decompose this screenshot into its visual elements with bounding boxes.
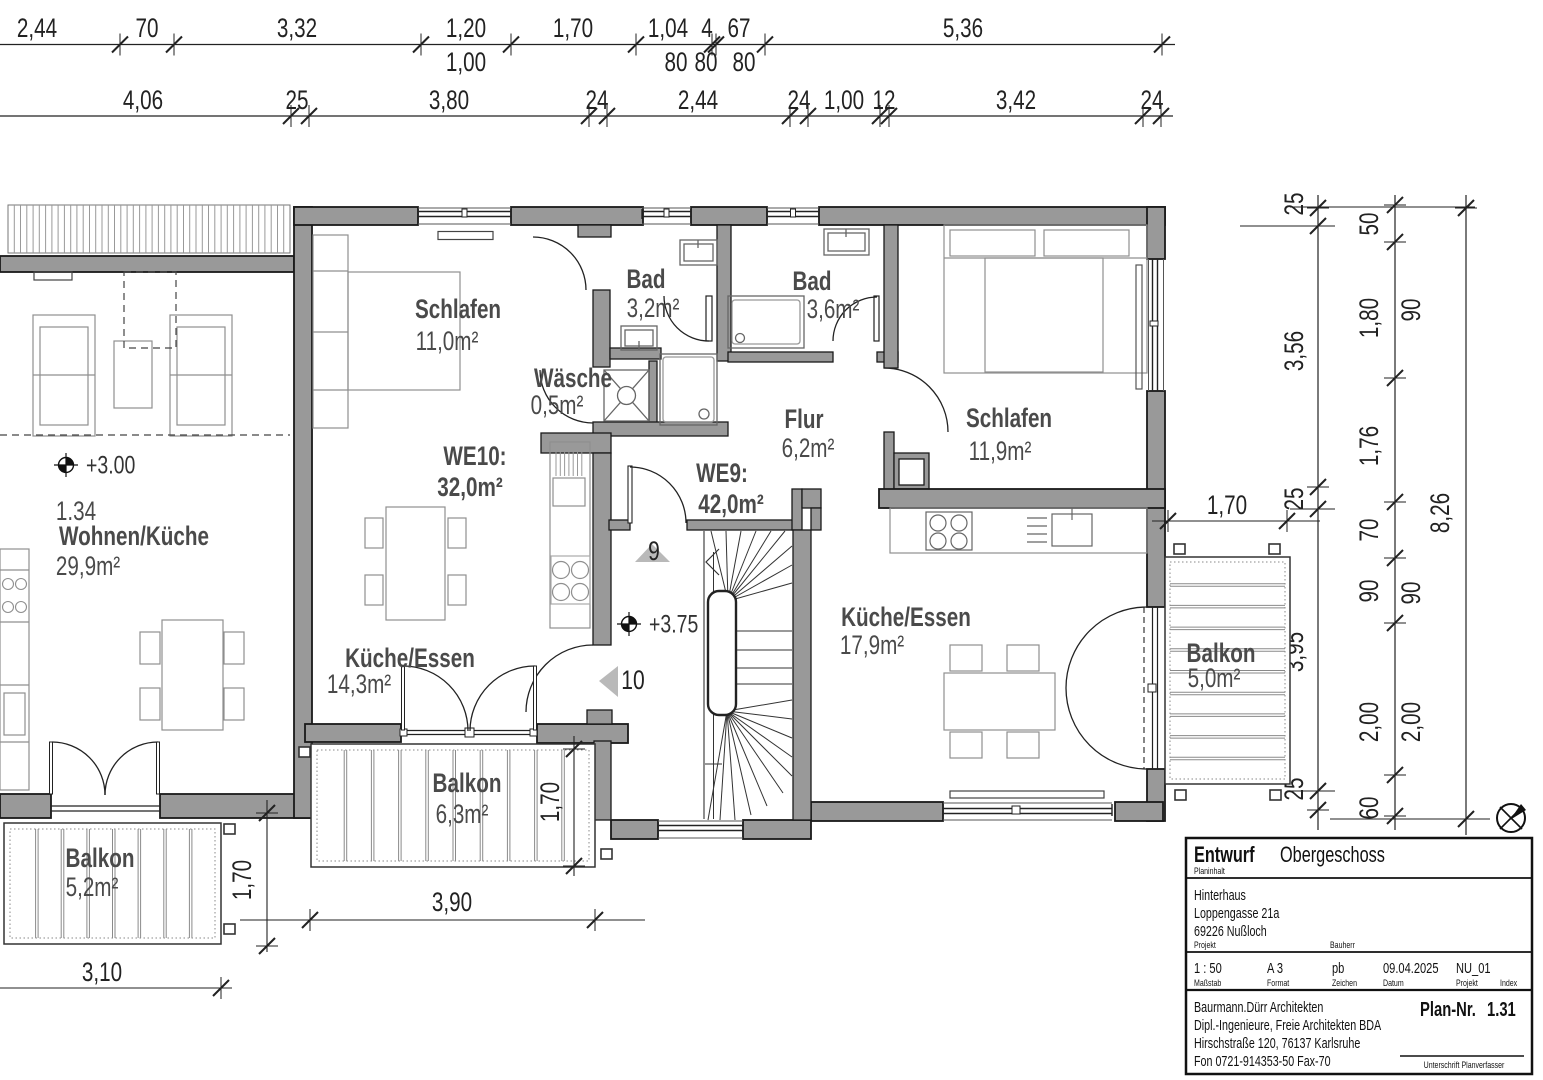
svg-text:67: 67	[728, 14, 751, 44]
svg-text:2,00: 2,00	[1397, 702, 1427, 742]
svg-text:1,04: 1,04	[648, 14, 688, 44]
svg-text:42,0m²: 42,0m²	[698, 490, 764, 520]
svg-text:5,0m²: 5,0m²	[1188, 664, 1241, 694]
svg-text:Datum: Datum	[1383, 977, 1404, 988]
svg-text:Schlafen: Schlafen	[966, 404, 1052, 434]
svg-text:50: 50	[1355, 213, 1385, 236]
svg-text:NU_01: NU_01	[1456, 959, 1491, 976]
svg-text:1,70: 1,70	[553, 14, 593, 44]
svg-text:1,20: 1,20	[446, 14, 486, 44]
svg-text:Küche/Essen: Küche/Essen	[841, 603, 971, 633]
svg-text:90: 90	[1397, 299, 1427, 322]
svg-text:Projekt: Projekt	[1194, 939, 1216, 950]
svg-text:24: 24	[788, 86, 811, 116]
svg-text:Balkon: Balkon	[66, 844, 135, 874]
svg-text:5,2m²: 5,2m²	[66, 873, 119, 903]
svg-text:1,80: 1,80	[1355, 298, 1385, 338]
svg-text:Plan-Nr.: Plan-Nr.	[1420, 998, 1476, 1021]
svg-text:25: 25	[1280, 488, 1310, 511]
svg-text:2,44: 2,44	[17, 14, 57, 44]
svg-text:Zeichen: Zeichen	[1332, 977, 1357, 988]
svg-text:3,90: 3,90	[432, 888, 472, 918]
svg-text:1.34: 1.34	[56, 497, 96, 527]
svg-text:70: 70	[136, 14, 159, 44]
svg-text:0,5m²: 0,5m²	[531, 391, 584, 421]
svg-text:11,0m²: 11,0m²	[416, 327, 479, 357]
svg-text:Projekt: Projekt	[1456, 977, 1478, 988]
svg-text:Dipl.-Ingenieure, Freie Archit: Dipl.-Ingenieure, Freie Architekten BDA	[1194, 1016, 1382, 1033]
svg-text:90: 90	[1355, 580, 1385, 603]
svg-text:1,70: 1,70	[536, 782, 566, 822]
svg-text:4: 4	[701, 14, 712, 44]
svg-text:80: 80	[665, 48, 688, 78]
svg-text:+3.75: +3.75	[649, 610, 698, 638]
svg-text:1,00: 1,00	[446, 48, 486, 78]
svg-text:Flur: Flur	[784, 405, 823, 435]
svg-text:6,2m²: 6,2m²	[782, 434, 835, 464]
svg-text:11,9m²: 11,9m²	[969, 437, 1032, 467]
svg-text:Hinterhaus: Hinterhaus	[1194, 886, 1246, 903]
svg-text:70: 70	[1355, 519, 1385, 542]
svg-text:9: 9	[648, 537, 660, 567]
svg-text:29,9m²: 29,9m²	[56, 552, 120, 582]
svg-text:Baurmann.Dürr Architekten: Baurmann.Dürr Architekten	[1194, 998, 1323, 1015]
svg-text:8,26: 8,26	[1426, 493, 1456, 533]
svg-text:6,3m²: 6,3m²	[436, 800, 489, 830]
svg-text:Bad: Bad	[626, 265, 665, 295]
svg-text:Maßstab: Maßstab	[1194, 977, 1222, 988]
svg-text:2,00: 2,00	[1355, 702, 1385, 742]
svg-text:1.31: 1.31	[1487, 998, 1516, 1021]
svg-text:80: 80	[733, 48, 756, 78]
svg-text:3,80: 3,80	[429, 86, 469, 116]
svg-text:1,76: 1,76	[1355, 426, 1385, 466]
svg-text:09.04.2025: 09.04.2025	[1383, 959, 1439, 976]
svg-text:Hirschstraße 120, 76137 Karlsr: Hirschstraße 120, 76137 Karlsruhe	[1194, 1034, 1360, 1051]
svg-text:60: 60	[1355, 797, 1385, 820]
svg-text:Fon 0721-914353-50 Fax-70: Fon 0721-914353-50 Fax-70	[1194, 1052, 1331, 1069]
svg-text:WE10:: WE10:	[443, 442, 506, 472]
svg-text:24: 24	[586, 86, 609, 116]
svg-text:Unterschrift Planverfasser: Unterschrift Planverfasser	[1424, 1059, 1505, 1070]
svg-text:pb: pb	[1332, 959, 1344, 976]
svg-text:Bad: Bad	[792, 267, 831, 297]
svg-text:3,42: 3,42	[996, 86, 1036, 116]
svg-text:1,70: 1,70	[1207, 491, 1247, 521]
svg-text:Balkon: Balkon	[433, 769, 502, 799]
svg-text:80: 80	[695, 48, 718, 78]
svg-text:1,70: 1,70	[228, 860, 258, 900]
svg-text:17,9m²: 17,9m²	[840, 631, 904, 661]
svg-text:25: 25	[286, 86, 309, 116]
svg-text:Index: Index	[1500, 977, 1518, 988]
svg-text:12: 12	[873, 86, 896, 116]
svg-text:Planinhalt: Planinhalt	[1194, 865, 1225, 876]
svg-text:Loppengasse 21a: Loppengasse 21a	[1194, 904, 1280, 921]
svg-text:Obergeschoss: Obergeschoss	[1280, 843, 1385, 868]
svg-text:1,00: 1,00	[824, 86, 864, 116]
svg-text:24: 24	[1141, 86, 1164, 116]
svg-text:3,6m²: 3,6m²	[807, 295, 860, 325]
svg-text:32,0m²: 32,0m²	[437, 473, 503, 503]
svg-text:WE9:: WE9:	[696, 459, 748, 489]
svg-text:Schlafen: Schlafen	[415, 295, 501, 325]
svg-text:A 3: A 3	[1267, 959, 1283, 976]
svg-text:69226 Nußloch: 69226 Nußloch	[1194, 922, 1267, 939]
svg-text:3,56: 3,56	[1280, 331, 1310, 371]
svg-text:1 : 50: 1 : 50	[1194, 959, 1222, 976]
svg-text:Wäsche: Wäsche	[534, 364, 612, 394]
svg-text:3,10: 3,10	[82, 958, 122, 988]
svg-text:4,06: 4,06	[123, 86, 163, 116]
svg-text:+3.00: +3.00	[86, 451, 135, 479]
svg-text:3,32: 3,32	[277, 14, 317, 44]
svg-text:14,3m²: 14,3m²	[327, 670, 391, 700]
svg-text:2,44: 2,44	[678, 86, 718, 116]
svg-text:25: 25	[1280, 193, 1310, 216]
svg-text:5,36: 5,36	[943, 14, 983, 44]
svg-text:90: 90	[1397, 582, 1427, 605]
svg-text:10: 10	[621, 666, 644, 696]
svg-text:Format: Format	[1267, 977, 1290, 988]
svg-text:Bauherr: Bauherr	[1330, 939, 1355, 950]
svg-text:3,2m²: 3,2m²	[627, 294, 680, 324]
